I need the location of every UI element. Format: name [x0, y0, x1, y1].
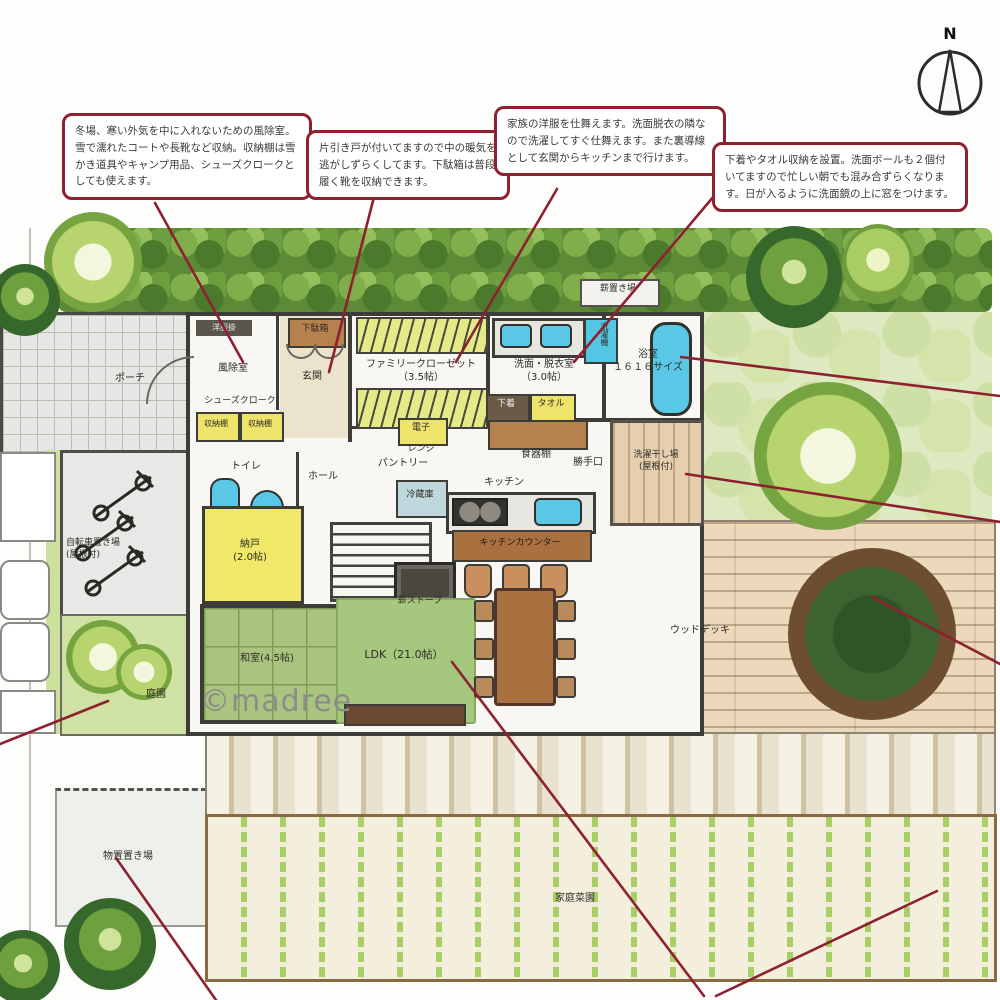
label-porch: ポーチ: [100, 372, 160, 385]
label-family-closet: ファミリークローゼット （3.5帖）: [352, 358, 490, 384]
wash-basin-1: [500, 324, 532, 348]
left-structure-1: [0, 452, 56, 542]
compass-north-label: N: [908, 24, 992, 43]
chair-3: [474, 676, 494, 698]
note-windbreak: 冬場、寒い外気を中に入れないための風除室。雪で濡れたコートや長靴など収納。収納棚…: [62, 113, 312, 200]
stool-1: [464, 564, 492, 598]
label-fridge: 冷蔵庫: [396, 490, 444, 502]
chair-6: [556, 676, 576, 698]
tree-bottom-left-2: [0, 930, 60, 1000]
label-hall: ホール: [288, 470, 358, 483]
cupboard-box: [488, 420, 588, 450]
label-towel: タオル: [530, 399, 572, 411]
dining-table: [494, 588, 556, 706]
wash-basin-2: [540, 324, 572, 348]
tree-top-right-2: [842, 224, 914, 304]
site-plan-canvas: ポーチ 洋服掛 風除室 シューズクローク 収納棚 収納棚 下駄箱 玄関 ファミリ…: [0, 0, 1000, 1000]
label-storage-shelf-1: 収納棚: [196, 419, 236, 429]
chair-4: [556, 600, 576, 622]
label-microwave-bottom: レンジ: [398, 444, 444, 456]
label-vegetable-garden: 家庭菜園: [528, 892, 622, 905]
label-garden: 庭園: [130, 688, 182, 701]
label-pantry: パントリー: [366, 457, 440, 470]
label-ldk: LDK（21.0帖）: [338, 648, 470, 662]
label-microwave-top: 電子: [398, 423, 444, 435]
note-sliding-door: 片引き戸が付いてますので中の暖気を逃がしずらくしてます。下駄箱は普段履く靴を収納…: [306, 130, 510, 200]
label-bicycle-parking: 自転車置き場 (屋根付): [66, 538, 178, 561]
label-tatami-room: 和室(4.5帖): [200, 652, 334, 665]
chair-5: [556, 638, 576, 660]
label-storage-shelf-2: 収納棚: [240, 419, 280, 429]
label-underwear: 下着: [486, 399, 526, 411]
label-shoe-cabinet: 下駄箱: [288, 324, 342, 336]
tv-board: [344, 704, 466, 726]
chair-2: [474, 638, 494, 660]
kitchen-sink: [534, 498, 582, 526]
left-structure-2: [0, 560, 50, 620]
tree-top-right-1: [746, 226, 842, 328]
label-bathroom: 浴室 １６１６サイズ: [600, 348, 696, 374]
bicycles-sketch: [63, 453, 183, 608]
stove-top: [452, 498, 508, 526]
chair-1: [474, 600, 494, 622]
label-clothes-rack: 洋服掛: [198, 323, 250, 333]
label-windbreak: 風除室: [193, 362, 273, 375]
compass-rose-icon: [913, 43, 987, 119]
label-wood-stove: 薪ストーブ: [384, 596, 456, 608]
tree-bottom-left-1: [64, 898, 156, 990]
label-laundry-deck: 洗濯干し場 (屋根付): [614, 450, 698, 473]
label-wood-deck: ウッドデッキ: [650, 624, 750, 637]
label-toilet: トイレ: [206, 460, 286, 473]
watermark: ©madree: [200, 684, 352, 719]
label-kitchen-counter: キッチンカウンター: [452, 538, 588, 550]
label-shoes-closet: シューズクローク: [188, 396, 292, 408]
bicycle-area: [60, 450, 192, 618]
label-firewood: 薪置き場: [580, 284, 656, 296]
compass: N: [908, 24, 992, 123]
closet-rack-top: [356, 317, 488, 354]
left-structure-4: [0, 690, 56, 734]
tree-lawn-big: [754, 382, 902, 530]
fence-path: [205, 732, 996, 818]
label-storeroom: 納戸 (2.0帖): [202, 538, 298, 564]
label-washing-machine: 洗濯機: [589, 322, 609, 346]
label-kitchen: キッチン: [464, 476, 544, 489]
label-entrance: 玄関: [282, 370, 342, 383]
label-storage-yard: 物置置き場: [70, 850, 186, 863]
tree-deck-brown: [788, 548, 956, 720]
note-family-closet: 家族の洋服を仕舞えます。洗面脱衣の隣なので洗濯してすぐ仕舞えます。また裏導線とし…: [494, 106, 726, 176]
label-back-door: 勝手口: [558, 456, 618, 469]
label-washroom: 洗面・脱衣室 （3.0帖）: [488, 358, 600, 384]
note-washroom: 下着やタオル収納を設置。洗面ボールも２個付いてますので忙しい朝でも混み合ずらくな…: [712, 142, 968, 212]
left-structure-3: [0, 622, 50, 682]
